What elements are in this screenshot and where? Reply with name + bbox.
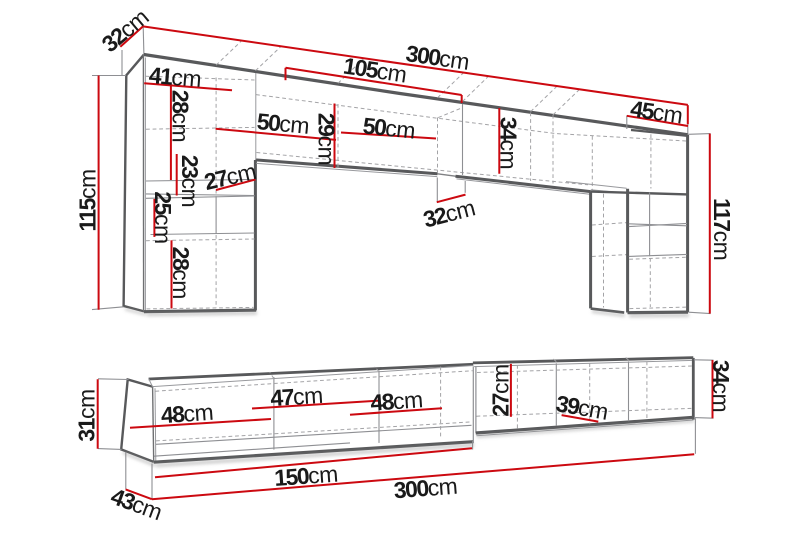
svg-text:28cm: 28cm (168, 247, 194, 299)
svg-text:29cm: 29cm (314, 113, 340, 165)
svg-text:150cm: 150cm (273, 461, 338, 491)
svg-text:27cm: 27cm (488, 364, 514, 416)
svg-text:117cm: 117cm (709, 198, 735, 260)
svg-text:34cm: 34cm (496, 117, 522, 169)
svg-text:28cm: 28cm (168, 90, 194, 142)
svg-text:34cm: 34cm (708, 360, 734, 412)
svg-text:48cm: 48cm (370, 386, 424, 416)
svg-text:41cm: 41cm (148, 62, 202, 92)
svg-text:300cm: 300cm (393, 473, 458, 504)
svg-text:23cm: 23cm (177, 155, 203, 207)
svg-text:25cm: 25cm (150, 191, 176, 243)
svg-text:48cm: 48cm (160, 399, 214, 429)
svg-text:50cm: 50cm (362, 112, 417, 143)
svg-text:50cm: 50cm (256, 108, 310, 139)
svg-text:115cm: 115cm (75, 169, 101, 231)
svg-text:47cm: 47cm (270, 382, 324, 411)
svg-text:31cm: 31cm (74, 389, 100, 441)
